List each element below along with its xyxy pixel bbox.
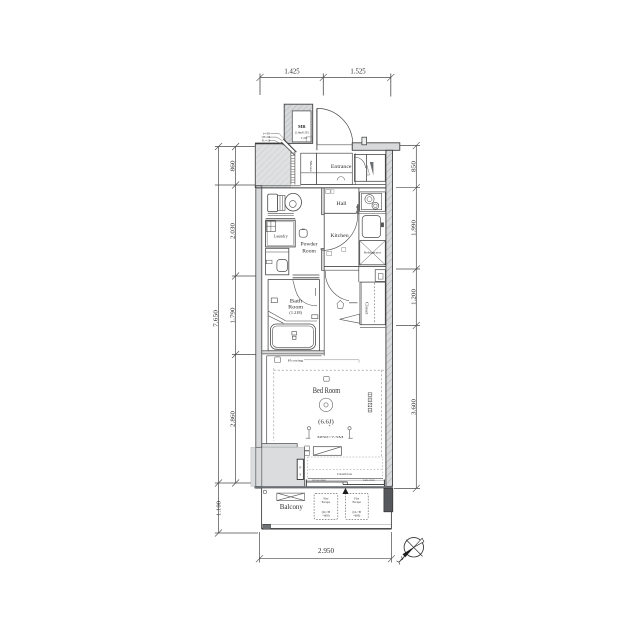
- svg-text:×600): ×600): [353, 514, 360, 518]
- svg-text:t=50: t=50: [263, 132, 271, 135]
- svg-text:1.200: 1.200: [410, 288, 417, 305]
- svg-text:2.860: 2.860: [230, 410, 237, 427]
- svg-text:Bath: Bath: [290, 299, 303, 304]
- svg-text:Room: Room: [302, 248, 316, 254]
- svg-text:3050×7.5M: 3050×7.5M: [317, 435, 344, 439]
- svg-text:7.650: 7.650: [213, 309, 220, 327]
- svg-text:1.525: 1.525: [350, 67, 366, 75]
- svg-text:Refrigerator: Refrigerator: [364, 251, 381, 255]
- svg-text:1.790: 1.790: [230, 307, 237, 324]
- svg-text:(6.6J): (6.6J): [318, 418, 334, 425]
- svg-text:CH=240: CH=240: [262, 136, 271, 139]
- svg-text:2.030: 2.030: [230, 222, 237, 239]
- svg-text:1.990: 1.990: [410, 219, 417, 236]
- svg-text:Powder: Powder: [301, 241, 318, 247]
- svg-text:2.950: 2.950: [318, 547, 335, 555]
- svg-text:Escape: Escape: [352, 500, 361, 504]
- svg-text:860: 860: [230, 160, 237, 172]
- svg-text:Flooring: Flooring: [288, 358, 304, 362]
- svg-text:Curtain box: Curtain box: [337, 472, 352, 476]
- svg-text:C=60: C=60: [301, 137, 308, 140]
- svg-text:1.425: 1.425: [284, 67, 300, 75]
- svg-text:Closet: Closet: [365, 302, 370, 315]
- svg-text:850: 850: [410, 160, 417, 172]
- svg-text:1.100: 1.100: [216, 500, 223, 516]
- svg-text:P: P: [299, 465, 301, 469]
- svg-text:Balcony: Balcony: [280, 502, 303, 511]
- svg-text:Kitchen: Kitchen: [330, 233, 349, 239]
- svg-text:3.600: 3.600: [410, 398, 417, 415]
- svg-text:Escape: Escape: [322, 500, 331, 504]
- svg-text:W=75: W=75: [355, 206, 358, 215]
- svg-text:Entrance: Entrance: [331, 165, 352, 170]
- svg-text:Hall: Hall: [337, 202, 348, 207]
- svg-text:×600): ×600): [322, 514, 329, 518]
- svg-text:(1.218): (1.218): [289, 310, 302, 315]
- svg-text:FL=+20: FL=+20: [262, 140, 271, 143]
- svg-text:S: S: [299, 472, 301, 476]
- svg-text:Bed Room: Bed Room: [313, 386, 341, 395]
- svg-text:W1650×H203: W1650×H203: [312, 479, 327, 482]
- svg-text:Laundry: Laundry: [274, 235, 288, 239]
- svg-text:Shoes: Shoes: [309, 161, 313, 173]
- svg-text:N: N: [399, 557, 404, 562]
- svg-text:(1.8m/0.5P): (1.8m/0.5P): [295, 131, 309, 135]
- svg-text:MB: MB: [298, 124, 306, 129]
- svg-text:W830×H203: W830×H203: [363, 479, 376, 482]
